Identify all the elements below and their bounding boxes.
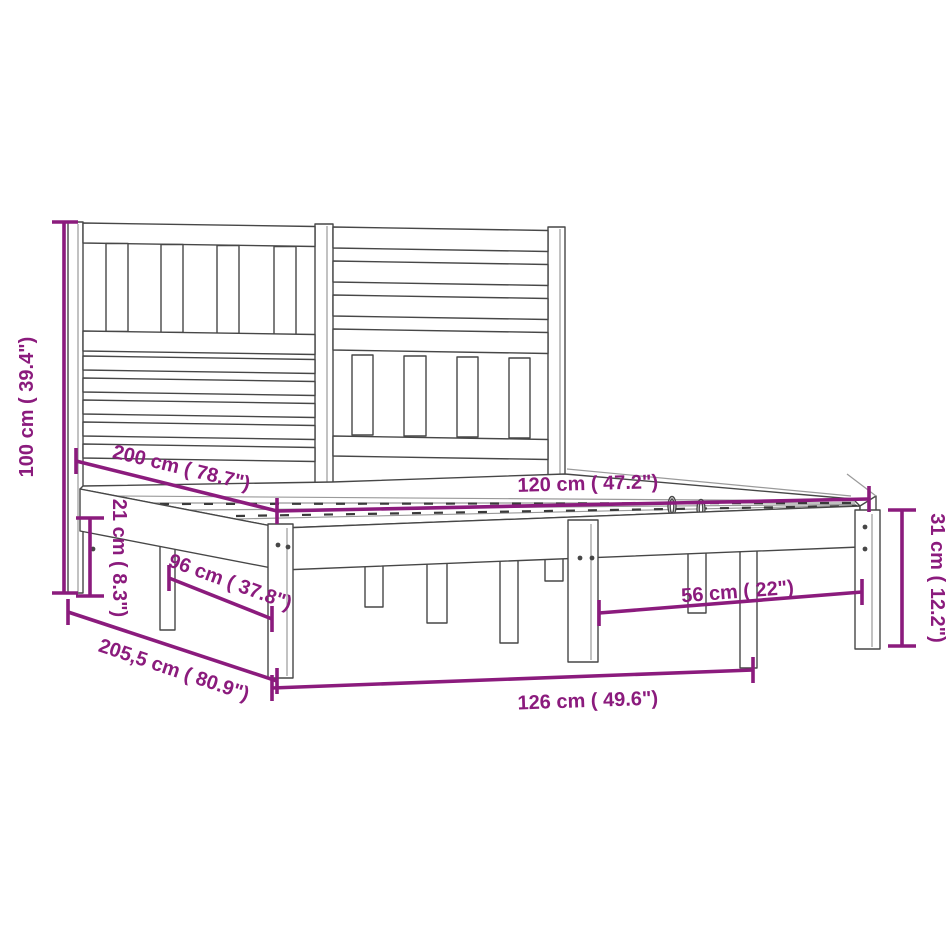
dimension-base-height: 31 cm ( 12.2") — [888, 510, 947, 646]
headboard-left-vertical-slats — [106, 244, 296, 335]
dimension-leg-span-end: 56 cm ( 22") — [599, 577, 862, 626]
dimension-clearance: 21 cm ( 8.3") — [76, 499, 130, 617]
diagram-canvas: 100 cm ( 39.4") 200 cm ( 78.7") 120 cm (… — [0, 0, 947, 947]
dimension-label-bed-width: 120 cm ( 47.2") — [517, 471, 658, 497]
headboard-right-vertical-slats — [352, 355, 530, 438]
dimension-label-clearance: 21 cm ( 8.3") — [108, 499, 130, 617]
headboard-left-mid-rail — [83, 331, 315, 355]
front-middle-leg — [568, 520, 598, 662]
headboard-right-bottom-rail — [333, 436, 548, 460]
dimension-total-width: 126 cm ( 49.6") — [272, 657, 753, 714]
headboard-left-post — [68, 222, 83, 593]
dimension-label-total-height: 100 cm ( 39.4") — [16, 337, 38, 478]
dimension-label-base-height: 31 cm ( 12.2") — [926, 513, 947, 643]
headboard-right-horizontal-boards — [333, 227, 548, 354]
headboard-right-post — [548, 227, 565, 478]
bed-frame-dimension-diagram: 100 cm ( 39.4") 200 cm ( 78.7") 120 cm (… — [0, 0, 947, 947]
headboard-middle-post — [315, 224, 333, 526]
dimension-label-total-width: 126 cm ( 49.6") — [517, 688, 658, 715]
front-right-leg — [855, 510, 880, 649]
